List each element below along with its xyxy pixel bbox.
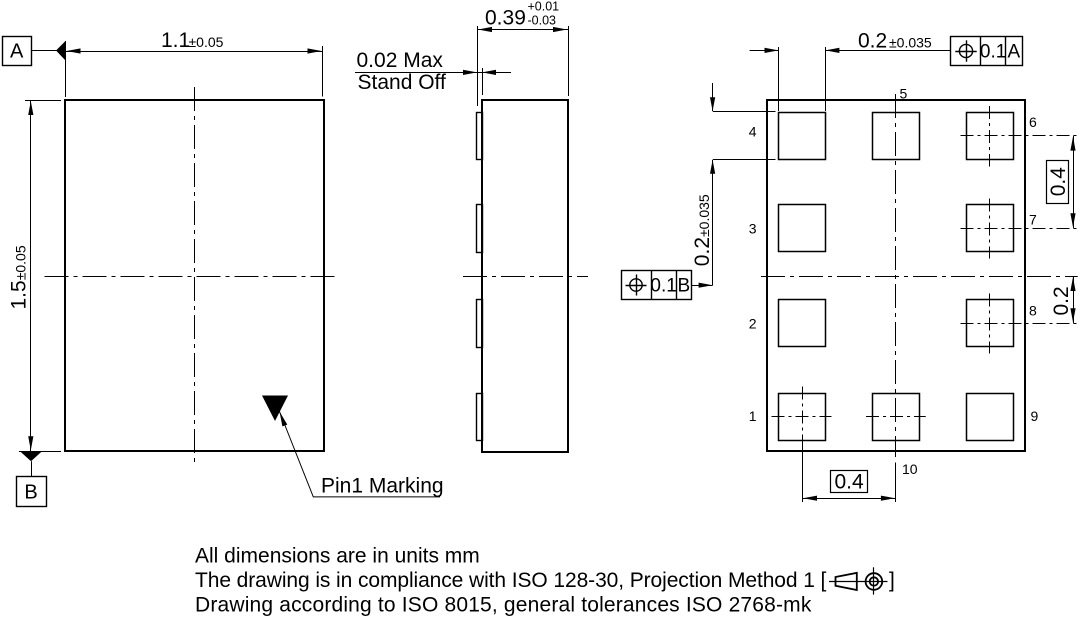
svg-text:+0.01: +0.01 bbox=[528, 0, 560, 14]
svg-text:A: A bbox=[10, 41, 24, 63]
svg-text:Pin1 Marking: Pin1 Marking bbox=[321, 475, 444, 498]
svg-text:-0.03: -0.03 bbox=[528, 14, 557, 28]
svg-text:3: 3 bbox=[749, 221, 757, 237]
svg-text:]: ] bbox=[889, 569, 895, 592]
svg-text:1: 1 bbox=[749, 408, 757, 424]
svg-text:0.1: 0.1 bbox=[650, 276, 676, 297]
svg-text:0.39: 0.39 bbox=[485, 7, 526, 30]
svg-text:A: A bbox=[1008, 42, 1021, 63]
svg-text:9: 9 bbox=[1031, 408, 1039, 424]
svg-text:8: 8 bbox=[1029, 303, 1037, 319]
svg-text:0.4: 0.4 bbox=[834, 471, 864, 494]
svg-text:0.2: 0.2 bbox=[858, 30, 887, 53]
svg-text:4: 4 bbox=[749, 124, 757, 140]
svg-text:0.02 Max: 0.02 Max bbox=[357, 49, 444, 72]
svg-text:0.1: 0.1 bbox=[980, 42, 1006, 63]
svg-text:0.2: 0.2 bbox=[1050, 286, 1073, 315]
svg-text:2: 2 bbox=[749, 316, 757, 332]
svg-text:The drawing is in compliance w: The drawing is in compliance with ISO 12… bbox=[195, 569, 827, 592]
svg-text:10: 10 bbox=[902, 461, 918, 477]
svg-text:5: 5 bbox=[900, 85, 908, 101]
svg-text:Drawing according to ISO 8015,: Drawing according to ISO 8015, general t… bbox=[195, 593, 812, 616]
svg-text:±0.035: ±0.035 bbox=[889, 35, 932, 51]
svg-text:B: B bbox=[677, 276, 690, 297]
svg-text:±0.05: ±0.05 bbox=[189, 34, 224, 50]
svg-text:6: 6 bbox=[1029, 114, 1037, 130]
svg-text:1.1: 1.1 bbox=[161, 29, 190, 52]
svg-text:B: B bbox=[24, 482, 37, 504]
svg-text:All dimensions are in units mm: All dimensions are in units mm bbox=[195, 544, 480, 567]
svg-text:0.4: 0.4 bbox=[1047, 167, 1070, 197]
svg-text:7: 7 bbox=[1029, 212, 1037, 228]
svg-text:Stand Off: Stand Off bbox=[358, 71, 447, 94]
